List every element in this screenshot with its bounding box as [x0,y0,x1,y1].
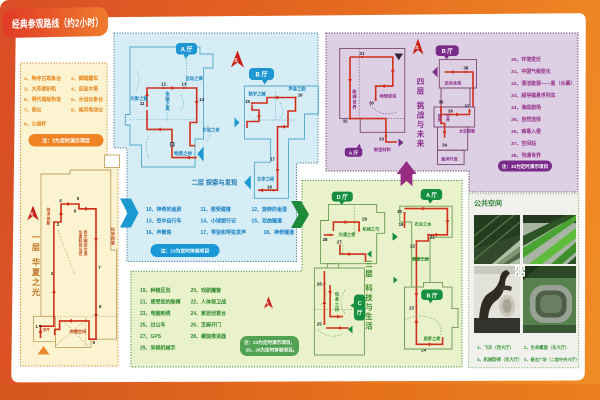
svg-text:健康之路: 健康之路 [412,256,430,263]
svg-text:34、海底剧场: 34、海底剧场 [511,104,541,111]
svg-text:D 厅: D 厅 [337,193,349,201]
svg-text:36、病毒入侵: 36、病毒入侵 [511,128,541,135]
svg-text:北: 北 [415,45,419,50]
svg-text:29: 29 [362,217,367,222]
svg-text:14: 14 [199,97,204,102]
svg-text:战: 战 [417,111,425,120]
svg-text:与: 与 [365,303,372,312]
svg-text:18: 18 [267,185,272,190]
svg-text:光: 光 [31,287,41,297]
svg-text:24、家居创意台: 24、家居创意台 [191,310,227,317]
svg-text:3、大花楼织机: 3、大花楼织机 [24,86,56,93]
svg-text:序厅: 序厅 [42,327,50,332]
svg-text:32、清洁能源——氢（水幕）: 32、清洁能源——氢（水幕） [511,80,575,87]
svg-text:32: 32 [343,119,348,124]
svg-text:23、电脑刺绣: 23、电脑刺绣 [140,310,172,317]
svg-text:华: 华 [32,257,40,267]
svg-text:2: 2 [522,267,524,271]
svg-text:16: 16 [298,92,303,97]
svg-text:C: C [358,301,362,307]
svg-text:35: 35 [439,100,444,105]
svg-text:3、机械韵律（东大厅）: 3、机械韵律（东大厅） [477,356,522,363]
svg-text:新型材料: 新型材料 [374,146,392,153]
svg-text:38、沟通世界: 38、沟通世界 [511,152,541,159]
svg-text:物质之妙: 物质之妙 [174,150,193,157]
svg-text:7、简仪: 7、简仪 [24,107,42,114]
svg-text:公共空间: 公共空间 [474,199,502,208]
svg-text:光影之魅: 光影之魅 [130,95,149,102]
svg-text:11、感受碰撞: 11、感受碰撞 [201,206,231,213]
svg-text:太空探索: 太空探索 [458,128,475,134]
svg-text:9、公道杯: 9、公道杯 [24,121,46,128]
svg-text:地球述说: 地球述说 [380,93,398,100]
svg-text:21: 21 [430,235,435,240]
svg-text:25、过山车: 25、过山车 [140,322,166,329]
svg-text:注：13为定时体验项目: 注：13为定时体验项目 [161,248,210,255]
svg-text:华夏科技与世: 华夏科技与世 [78,230,83,256]
svg-text:4、应县木塔: 4、应县木塔 [71,86,98,93]
svg-text:电磁之奥: 电磁之奥 [165,91,170,113]
svg-text:14、小球旅行记: 14、小球旅行记 [201,218,237,225]
svg-text:17: 17 [270,157,275,162]
svg-text:25: 25 [317,322,322,327]
svg-text:19、种植区划: 19、种植区划 [140,287,171,294]
svg-text:27: 27 [337,240,342,245]
svg-text:技术创新: 技术创新 [46,207,51,226]
svg-text:31、中国气候变化: 31、中国气候变化 [511,68,551,75]
svg-text:21、感受您的脉搏: 21、感受您的脉搏 [140,299,181,306]
svg-text:B 厅: B 厅 [442,47,454,55]
svg-text:10、神奇的画屏: 10、神奇的画屏 [146,206,182,213]
svg-text:30: 30 [369,101,374,106]
svg-text:18、神奇隧道: 18、神奇隧道 [264,229,295,236]
svg-text:37: 37 [465,104,470,109]
svg-text:之: 之 [32,277,41,287]
svg-text:26: 26 [317,282,322,287]
svg-text:科: 科 [365,284,373,293]
svg-text:1、飞天（西大厅）: 1、飞天（西大厅） [477,344,514,351]
svg-text:北: 北 [266,300,269,305]
svg-text:22: 22 [410,244,415,249]
svg-text:30、环境变迁: 30、环境变迁 [511,56,541,63]
svg-text:37、空间站: 37、空间站 [511,140,536,147]
svg-text:8、候风地动仪: 8、候风地动仪 [71,107,103,114]
svg-text:北: 北 [234,58,238,63]
svg-text:一: 一 [32,233,41,242]
svg-text:1、陶寺古观象台: 1、陶寺古观象台 [24,75,61,82]
svg-text:交通之便: 交通之便 [339,231,357,238]
svg-text:机械之巧: 机械之巧 [363,226,381,233]
svg-text:31: 31 [360,51,365,56]
svg-text:20、戏剧魔窗: 20、戏剧魔窗 [191,287,222,294]
svg-text:33、超导磁悬浮列车: 33、超导磁悬浮列车 [511,92,556,99]
svg-text:13: 13 [182,82,187,87]
svg-text:11: 11 [140,101,145,106]
svg-text:层: 层 [32,243,40,252]
svg-text:界文明的交流: 界文明的交流 [83,230,88,256]
svg-text:26、芝麻开门: 26、芝麻开门 [191,322,222,329]
svg-text:基因: 基因 [437,113,442,122]
svg-text:25、28为定时体验项目。: 25、28为定时体验项目。 [246,347,298,354]
svg-text:28、螺旋推进器: 28、螺旋推进器 [191,333,228,340]
svg-text:层: 层 [364,269,373,278]
svg-text:声音之韵: 声音之韵 [288,86,307,93]
svg-text:3: 3 [516,273,518,277]
svg-text:36: 36 [448,109,453,114]
svg-text:厅: 厅 [357,309,363,317]
svg-text:28: 28 [323,237,328,242]
svg-text:27、GPS: 27、GPS [140,334,162,340]
svg-text:科学探索: 科学探索 [110,227,115,246]
svg-text:活: 活 [365,322,373,331]
svg-text:24: 24 [421,348,426,353]
svg-text:29、采棉机械手: 29、采棉机械手 [140,345,176,352]
svg-text:数学之魅: 数学之魅 [249,91,267,98]
svg-text:22、人体保卫战: 22、人体保卫战 [191,299,227,306]
svg-text:34: 34 [442,143,447,148]
svg-text:35、自然选择: 35、自然选择 [511,116,541,123]
svg-text:宇宙之奇: 宇宙之奇 [203,127,221,134]
svg-text:10: 10 [171,143,175,147]
svg-text:农业之本: 农业之本 [414,221,433,228]
svg-text:挑: 挑 [417,101,425,110]
svg-text:技: 技 [365,293,373,302]
svg-text:注：23为定时演示项目，: 注：23为定时演示项目， [244,339,295,346]
svg-text:6、水运仪象台: 6、水运仪象台 [71,96,103,103]
svg-text:生命: 生命 [445,113,450,122]
svg-text:四: 四 [417,77,424,86]
svg-text:走向未来: 走向未来 [445,80,463,87]
svg-text:23: 23 [409,306,414,311]
svg-text:20: 20 [397,209,402,214]
svg-text:居家之美: 居家之美 [424,335,442,342]
svg-text:运动之律: 运动之律 [186,75,204,82]
svg-text:A 厅: A 厅 [349,149,359,156]
svg-text:4、悬龙广场（二层中央大厅）: 4、悬龙广场（二层中央大厅） [524,356,580,362]
svg-text:4: 4 [522,273,524,277]
svg-text:生: 生 [365,312,373,321]
svg-text:A 厅: A 厅 [426,191,437,199]
svg-text:12、旋转的金蛋: 12、旋转的金蛋 [252,206,289,213]
svg-text:B 厅: B 厅 [426,291,438,299]
svg-text:注：33为定时演示项目: 注：33为定时演示项目 [502,163,548,170]
svg-text:2、脚踏翻车: 2、脚踏翻车 [71,75,98,82]
svg-text:19: 19 [399,222,404,227]
svg-text:三: 三 [365,260,373,269]
svg-text:层: 层 [416,87,425,96]
svg-text:生命之秘: 生命之秘 [257,176,275,183]
svg-text:休憩空间: 休憩空间 [69,328,87,335]
svg-text:未: 未 [416,130,425,139]
svg-text:B 厅: B 厅 [255,71,267,79]
svg-text:38: 38 [463,66,468,71]
svg-text:13、空中自行车: 13、空中自行车 [146,218,182,225]
svg-text:海洋开发: 海洋开发 [441,156,459,163]
svg-text:2、生命螺旋（东大厅）: 2、生命螺旋（东大厅） [524,344,569,351]
svg-text:A 厅: A 厅 [181,46,193,54]
svg-text:1: 1 [516,267,518,271]
svg-text:15: 15 [245,99,250,104]
svg-text:33: 33 [379,137,384,142]
svg-text:12: 12 [161,82,166,87]
svg-text:17、琴弦和琴弦发声: 17、琴弦和琴弦发声 [201,229,247,236]
svg-text:与: 与 [417,120,424,129]
svg-text:注：3为定时演示项目: 注：3为定时演示项目 [42,138,90,145]
svg-text:夏: 夏 [31,268,41,277]
svg-text:16、声聚焦: 16、声聚焦 [146,229,172,236]
svg-text:来: 来 [416,139,425,148]
svg-text:15、双曲隧道: 15、双曲隧道 [252,218,283,225]
svg-text:5、明代福船构造: 5、明代福船构造 [24,96,61,103]
svg-text:二层 探索与发现: 二层 探索与发现 [192,178,239,187]
